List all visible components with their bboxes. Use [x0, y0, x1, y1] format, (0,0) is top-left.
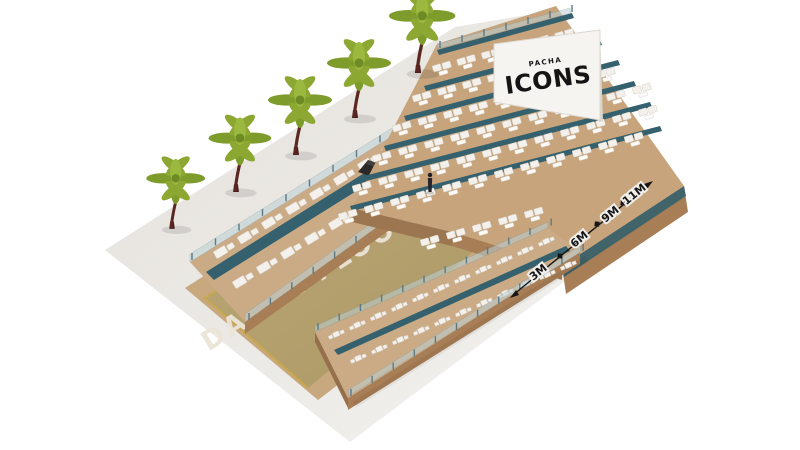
ruler-tick-diamond [557, 253, 562, 258]
venue-3d-render: DANCE FLOOR [0, 0, 800, 450]
ruler-tick-diamond [594, 221, 599, 226]
